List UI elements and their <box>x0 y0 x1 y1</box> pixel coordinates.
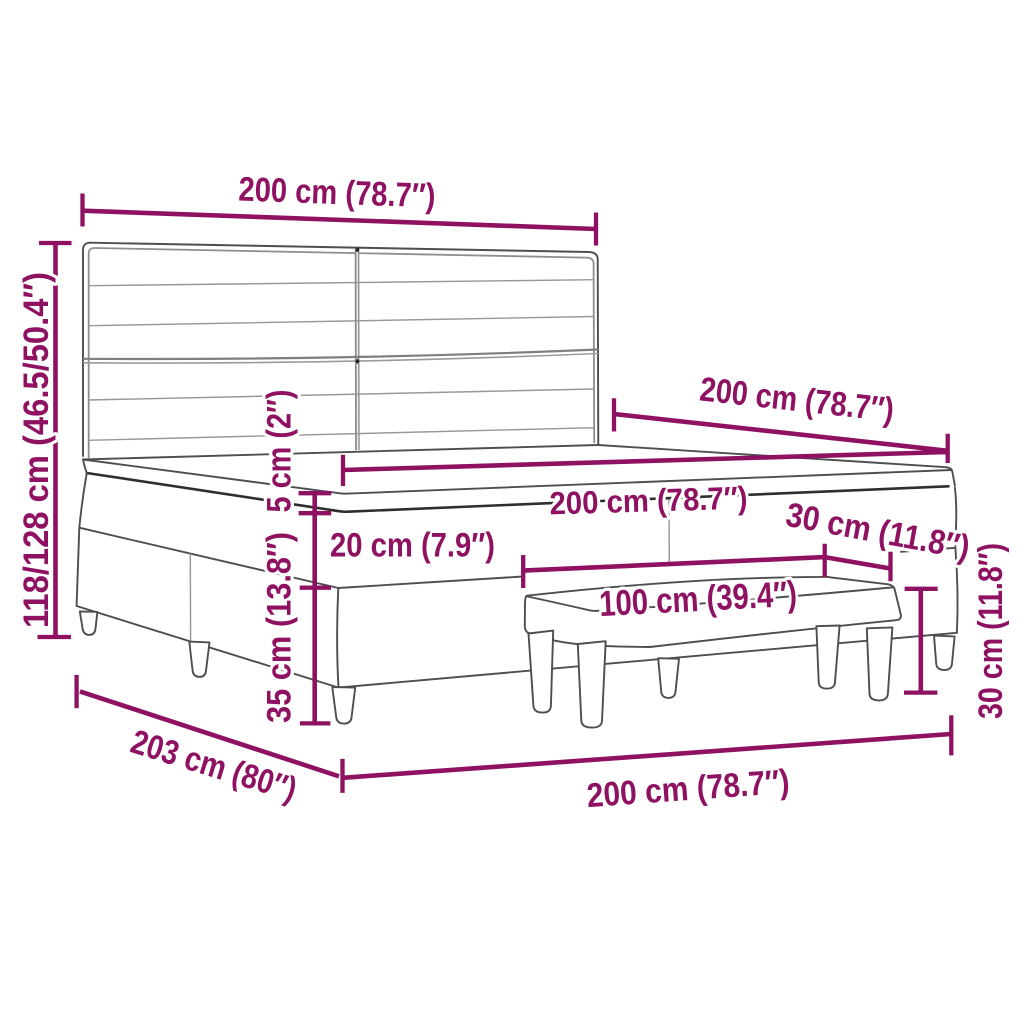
svg-text:200 cm (78.7″): 200 cm (78.7″) <box>238 171 436 216</box>
svg-text:20 cm (7.9″): 20 cm (7.9″) <box>330 527 495 565</box>
svg-text:30 cm (11.8″): 30 cm (11.8″) <box>972 543 1010 719</box>
svg-text:35 cm (13.8″): 35 cm (13.8″) <box>261 532 299 723</box>
svg-text:5 cm (2″): 5 cm (2″) <box>261 390 299 513</box>
svg-text:118/128 cm (46.5/50.4″): 118/128 cm (46.5/50.4″) <box>16 272 56 628</box>
svg-text:200 cm (78.7″): 200 cm (78.7″) <box>549 480 748 522</box>
